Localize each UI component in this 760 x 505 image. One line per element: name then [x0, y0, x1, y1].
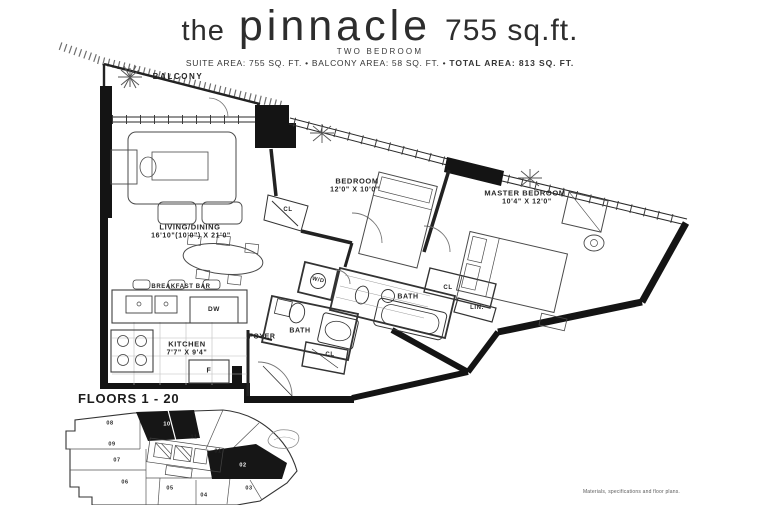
bedroom-door-arc [352, 213, 382, 243]
desk [111, 150, 137, 184]
stove-icon [111, 330, 153, 372]
kitchen-fixtures [111, 280, 247, 385]
chair-icon [584, 235, 604, 251]
toilet-icon [287, 302, 306, 325]
kitchen-sink [155, 296, 177, 313]
sectional-sofa [128, 132, 236, 204]
kitchen-counter [112, 290, 247, 323]
master-bed-icon [457, 232, 568, 313]
keyplan-unit-06: 06 [121, 480, 128, 486]
desk-chair [140, 157, 156, 177]
keyplan-unit-08: 08 [106, 421, 113, 427]
loveseat [158, 202, 196, 224]
disclaimer-text: Materials, specifications and floor plan… [583, 489, 680, 495]
bedroom-plant-icon [310, 124, 334, 143]
bedroom-closet [264, 195, 308, 231]
living-label: LIVING/DINING [159, 223, 220, 231]
sink-icon [382, 290, 395, 303]
fridge-label: F [207, 368, 212, 375]
keyplan-unit-03: 03 [245, 486, 252, 492]
dining-table [181, 232, 265, 287]
keyplan-heading: FLOORS 1 - 20 [78, 391, 179, 406]
floorplan-drawing [0, 0, 760, 505]
bathtub-icon [317, 312, 359, 349]
dresser-icon [562, 192, 608, 232]
ensuite-bath [330, 268, 468, 372]
master-closet-label: CL [443, 285, 452, 291]
living-dims: 16'10"(10'0") X 21'0" [151, 233, 231, 240]
window-pier [444, 157, 504, 186]
bathtub-icon [373, 298, 448, 341]
keyplan-unit-07: 07 [113, 458, 120, 464]
balcony-label: BALCONY [153, 73, 204, 81]
bedroom-closet-label: CL [283, 207, 292, 213]
main-bath-label: BATH [289, 328, 310, 335]
breakfast-bar-label: BREAKFAST BAR [151, 284, 210, 290]
living-window-wall [107, 98, 256, 122]
ensuite-bath-label: BATH [397, 294, 418, 301]
keyplan-unit-01: 01 [214, 449, 221, 455]
living-furniture [111, 132, 265, 287]
keyplan-site-sketch [268, 430, 299, 449]
linen-label: LIN. [470, 305, 484, 311]
bedroom-window-wall [289, 118, 448, 165]
toilet-icon [354, 285, 371, 305]
master-bedroom-label: MASTER BEDROOM [484, 189, 565, 197]
master-bedroom-dims: 10'4" X 12'0" [502, 199, 552, 206]
kitchen-dims: 7'7" X 9'4" [167, 350, 208, 357]
foyer-label: FOYER [248, 334, 275, 341]
floorplan-brochure-page: the pinnacle 755 sq.ft. TWO BEDROOM SUIT… [0, 0, 760, 505]
keyplan-unit-02: 02 [239, 463, 246, 469]
master-plant-icon [518, 169, 542, 188]
keyplan-drawing [66, 410, 299, 505]
bedroom-dims: 12'0" X 10'0" [330, 187, 380, 194]
coffee-table [152, 152, 208, 180]
keyplan-unit-04: 04 [200, 493, 207, 499]
vanity-icon [274, 299, 292, 317]
kitchen-label: KITCHEN [168, 340, 206, 348]
kitchen-sink [126, 296, 152, 313]
bedroom-label: BEDROOM [335, 177, 378, 185]
keyplan-unit-05: 05 [166, 486, 173, 492]
dishwasher-label: DW [208, 307, 220, 314]
foyer-closet-label: CL [325, 352, 334, 358]
loveseat [202, 202, 242, 224]
keyplan-unit-10: 10 [163, 422, 170, 428]
balcony-door-arc [209, 98, 228, 117]
structural-column [255, 105, 296, 148]
keyplan-unit-09: 09 [108, 442, 115, 448]
keyplan-unit-11: 11 [190, 435, 197, 441]
